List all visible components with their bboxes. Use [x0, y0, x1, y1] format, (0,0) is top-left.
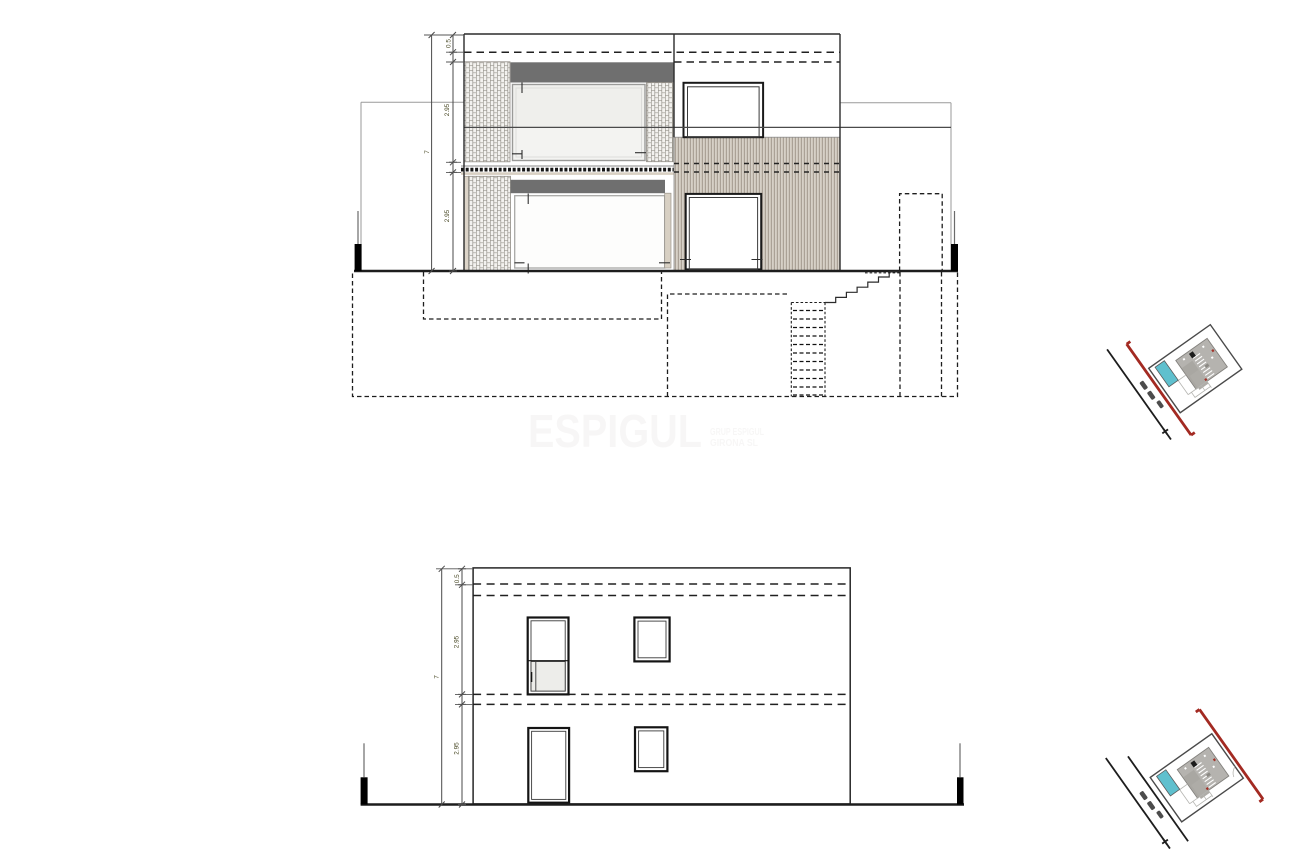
- svg-text:0.5: 0.5: [454, 574, 461, 583]
- svg-text:7: 7: [434, 675, 441, 679]
- svg-text:0.5: 0.5: [446, 39, 453, 48]
- svg-text:GRUP ESPIGUL: GRUP ESPIGUL: [710, 427, 764, 438]
- svg-text:2.95: 2.95: [453, 635, 460, 648]
- svg-text:2.95: 2.95: [444, 209, 451, 222]
- svg-text:7: 7: [424, 150, 431, 154]
- svg-text:2.95: 2.95: [444, 103, 451, 116]
- svg-text:GIRONA SL: GIRONA SL: [710, 438, 758, 449]
- svg-text:2.95: 2.95: [453, 742, 460, 755]
- svg-text:ESPIGUL: ESPIGUL: [528, 405, 702, 457]
